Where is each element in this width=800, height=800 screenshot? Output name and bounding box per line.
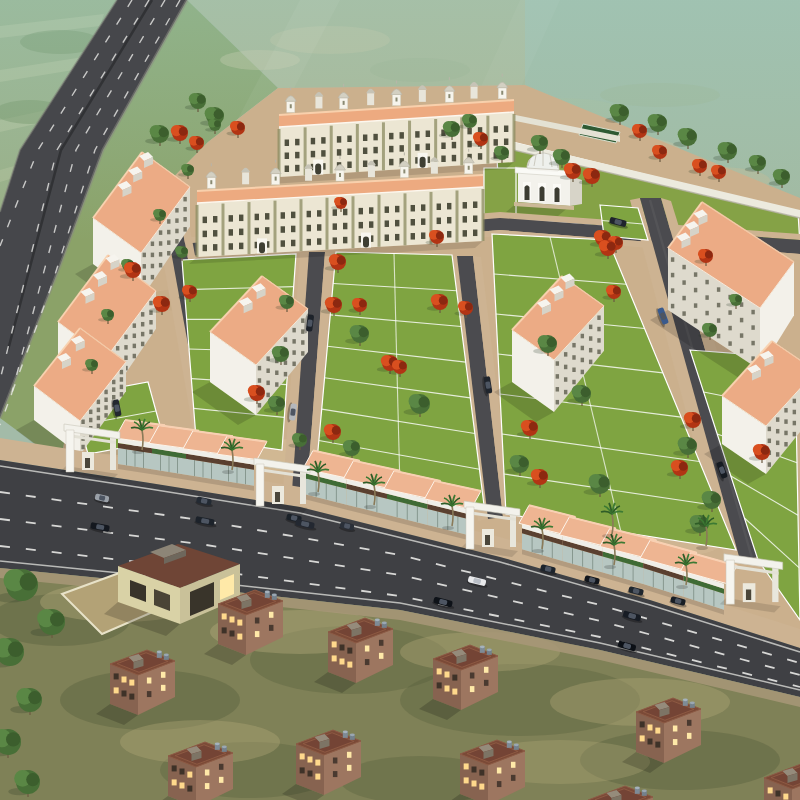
aerial-render-canvas — [0, 0, 800, 800]
clubhouse-arch-inner — [540, 186, 545, 201]
clubhouse-arch-inner — [525, 185, 530, 200]
clubhouse-arch-inner — [555, 187, 560, 202]
township-3d-render — [0, 0, 800, 800]
clubhouse-side — [570, 176, 582, 206]
township-layer — [0, 0, 800, 800]
